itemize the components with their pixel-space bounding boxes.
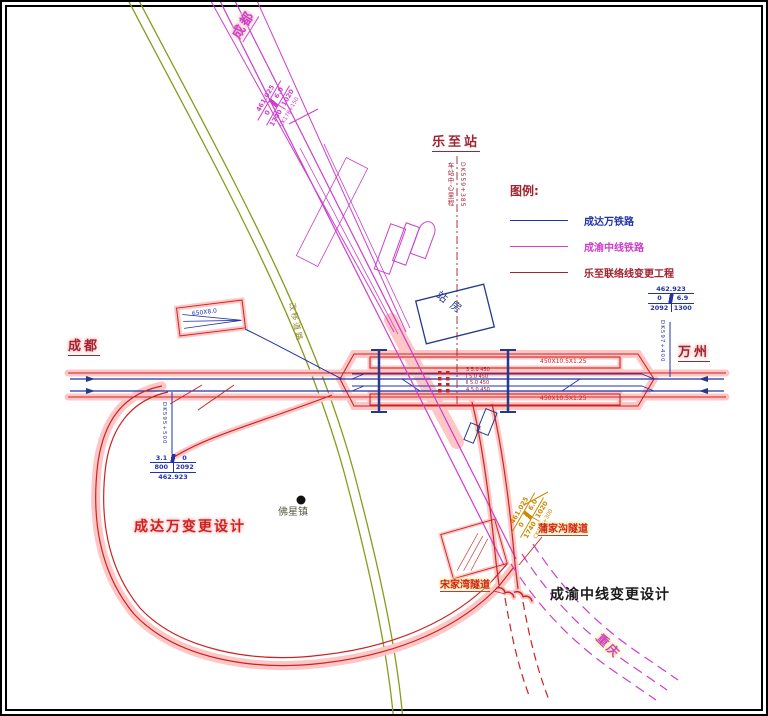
- label-foxing-town: 佛星镇: [278, 507, 308, 518]
- drawing-sheet: 成都 成都 万州 重庆 乐至站 车站中心里程 DK559+385 站房 图例: …: [0, 0, 768, 716]
- legend-label-lezhi: 乐至联络线变更工程: [584, 265, 674, 280]
- gradient-marker-left: 3.10 8002092 462.923: [150, 454, 196, 481]
- marker-length: 800: [150, 463, 174, 471]
- platform-top-label: 450X10.5X1.25: [540, 359, 586, 366]
- halo-layer: [68, 300, 726, 665]
- marker-length: 2092: [648, 304, 672, 312]
- marker-grade: 3.1: [150, 454, 173, 462]
- track-row: 3 5.0 450: [466, 368, 490, 374]
- marker-grade: 6.9: [671, 294, 694, 302]
- marker-length: 2092: [174, 463, 197, 471]
- legend-line-cyzx: [510, 246, 568, 247]
- legend-line-cdw: [510, 220, 568, 221]
- label-wanzhou: 万州: [678, 346, 710, 362]
- cyzx-dashed-chongqing: [511, 544, 678, 700]
- label-lezhi-station: 乐至站: [432, 136, 480, 152]
- legend-row-lezhi: 乐至联络线变更工程: [510, 259, 730, 285]
- legend-label-cdw: 成达万铁路: [584, 213, 634, 228]
- label-chengdu-left: 成都: [68, 340, 100, 356]
- gradient-marker-right: 462.923 06.9 20921300: [648, 285, 694, 312]
- label-cdw-change-design: 成达万变更设计: [134, 520, 246, 535]
- legend-line-lezhi: [510, 272, 568, 273]
- cyzx-buildings: [374, 219, 437, 274]
- label-songjiawan-tunnel: 宋家湾隧道: [440, 580, 490, 592]
- cyzx-line-bundle: [207, 2, 516, 565]
- legend-row-cyzx: 成渝中线铁路: [510, 233, 730, 259]
- track-row: 4 5.0 450: [466, 388, 490, 394]
- legend: 图例: 成达万铁路 成渝中线铁路 乐至联络线变更工程: [510, 182, 730, 285]
- marker-grade: 0: [648, 294, 671, 302]
- track-row: Ⅱ 5.0 450: [466, 381, 489, 387]
- station-center-mileage: DK559+385: [459, 162, 466, 226]
- station-center-caption: 车站中心里程: [445, 162, 455, 226]
- label-cyzx-change-design: 成渝中线变更设计: [550, 588, 670, 603]
- marker-grade: 0: [173, 454, 196, 462]
- marker-elevation: 462.923: [648, 285, 694, 294]
- marker-right-mileage: DK597+400: [659, 320, 665, 372]
- drawing-canvas: [2, 2, 768, 716]
- foxing-town-dot: [297, 496, 306, 505]
- platform-bottom-label: 450X10.5X1.25: [540, 396, 586, 403]
- legend-title: 图例:: [510, 182, 730, 199]
- label-pujiagou-tunnel: 蒲家沟隧道: [538, 524, 588, 536]
- marker-elevation: 462.923: [150, 472, 196, 481]
- legend-label-cyzx: 成渝中线铁路: [584, 239, 644, 254]
- marker-length: 1300: [672, 304, 695, 312]
- marker-left-mileage: DK595+500: [161, 402, 167, 454]
- legend-row-cdw: 成达万铁路: [510, 207, 730, 233]
